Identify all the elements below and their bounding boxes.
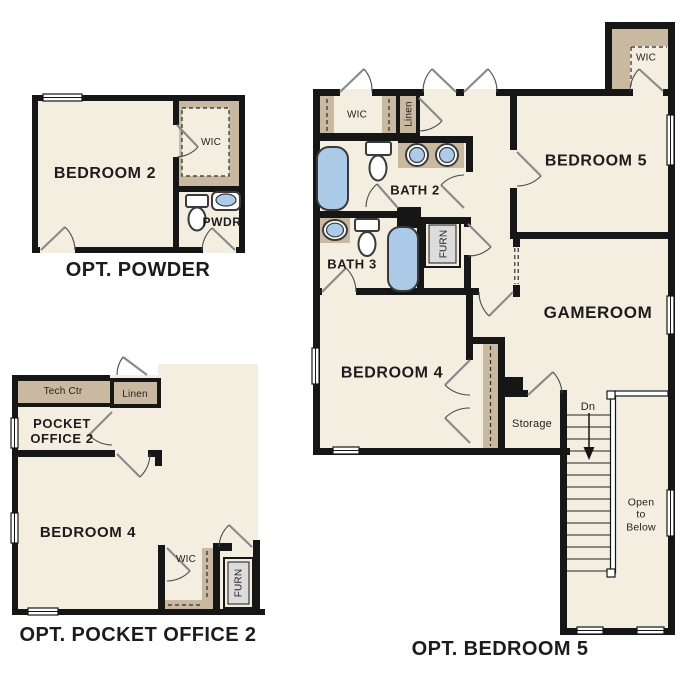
gameroom-label: GAMEROOM <box>544 303 653 322</box>
wic-annex-label: WIC <box>636 53 656 64</box>
railing-post <box>607 569 615 577</box>
window <box>11 418 18 448</box>
railing-post <box>607 391 615 399</box>
landing-railing <box>615 391 668 396</box>
window <box>667 296 674 334</box>
furn-label: FURN <box>439 230 450 259</box>
window <box>312 348 319 384</box>
tech-ctr-label: Tech Ctr <box>44 386 83 397</box>
plan-opt-pocket-office-2: Tech Ctr Linen POCKET OFFICE 2 BEDROOM 4… <box>11 357 265 646</box>
linen-label: Linen <box>404 101 415 126</box>
open-below-label-3: Below <box>626 522 656 534</box>
door-hall-top <box>117 357 147 375</box>
linen-label: Linen <box>122 389 147 400</box>
window <box>667 490 674 536</box>
stair-railing <box>611 395 616 573</box>
wic-hall-label: WIC <box>347 110 367 121</box>
floorplan-sheet: BEDROOM 2 WIC PWDR OPT. POWDER <box>0 0 687 687</box>
plan-title-bedroom5: OPT. BEDROOM 5 <box>412 638 589 660</box>
bedroom4-label: BEDROOM 4 <box>341 365 443 382</box>
pocket-floor-left <box>12 375 160 615</box>
bedroom4-label: BEDROOM 4 <box>40 524 136 541</box>
window <box>43 94 82 101</box>
window <box>11 513 18 543</box>
furn-label: FURN <box>234 569 245 598</box>
pwdr-label: PWDR <box>202 215 241 229</box>
plan-opt-powder: BEDROOM 2 WIC PWDR OPT. POWDER <box>32 94 245 281</box>
bathtub-icon <box>388 227 418 291</box>
wic-label: WIC <box>201 137 221 148</box>
plan-title-powder: OPT. POWDER <box>66 259 211 281</box>
stairs-dn-label: Dn <box>581 401 595 413</box>
bath2-label: BATH 2 <box>390 183 440 198</box>
plan-opt-bedroom-5: WIC Linen BATH 2 BEDROOM 5 WIC BATH 3 FU… <box>312 22 675 660</box>
bedroom2-label: BEDROOM 2 <box>54 165 156 182</box>
window <box>577 627 603 634</box>
sink-icon <box>323 220 347 240</box>
bath3-label: BATH 3 <box>327 257 377 272</box>
window <box>28 608 58 615</box>
storage-label: Storage <box>512 418 552 430</box>
door-hall-right <box>464 69 497 92</box>
plan-title-pocket-office: OPT. POCKET OFFICE 2 <box>20 624 257 646</box>
bedroom5-label: BEDROOM 5 <box>545 153 647 170</box>
open-below-label-2: to <box>636 509 645 521</box>
door-wic-hall <box>340 69 372 92</box>
wic-label: WIC <box>176 554 196 565</box>
floorplan-drawing: BEDROOM 2 WIC PWDR OPT. POWDER <box>0 0 687 687</box>
bathtub-icon <box>317 147 348 210</box>
window <box>333 447 359 454</box>
cased-opening <box>513 247 520 285</box>
window <box>667 115 674 165</box>
open-below-label-1: Open <box>628 497 655 509</box>
pocket-office-label-2: OFFICE 2 <box>30 431 93 446</box>
window <box>637 627 664 634</box>
pocket-office-label-1: POCKET <box>33 416 91 431</box>
door-hall-left <box>423 69 456 92</box>
sink-icon <box>212 192 240 210</box>
